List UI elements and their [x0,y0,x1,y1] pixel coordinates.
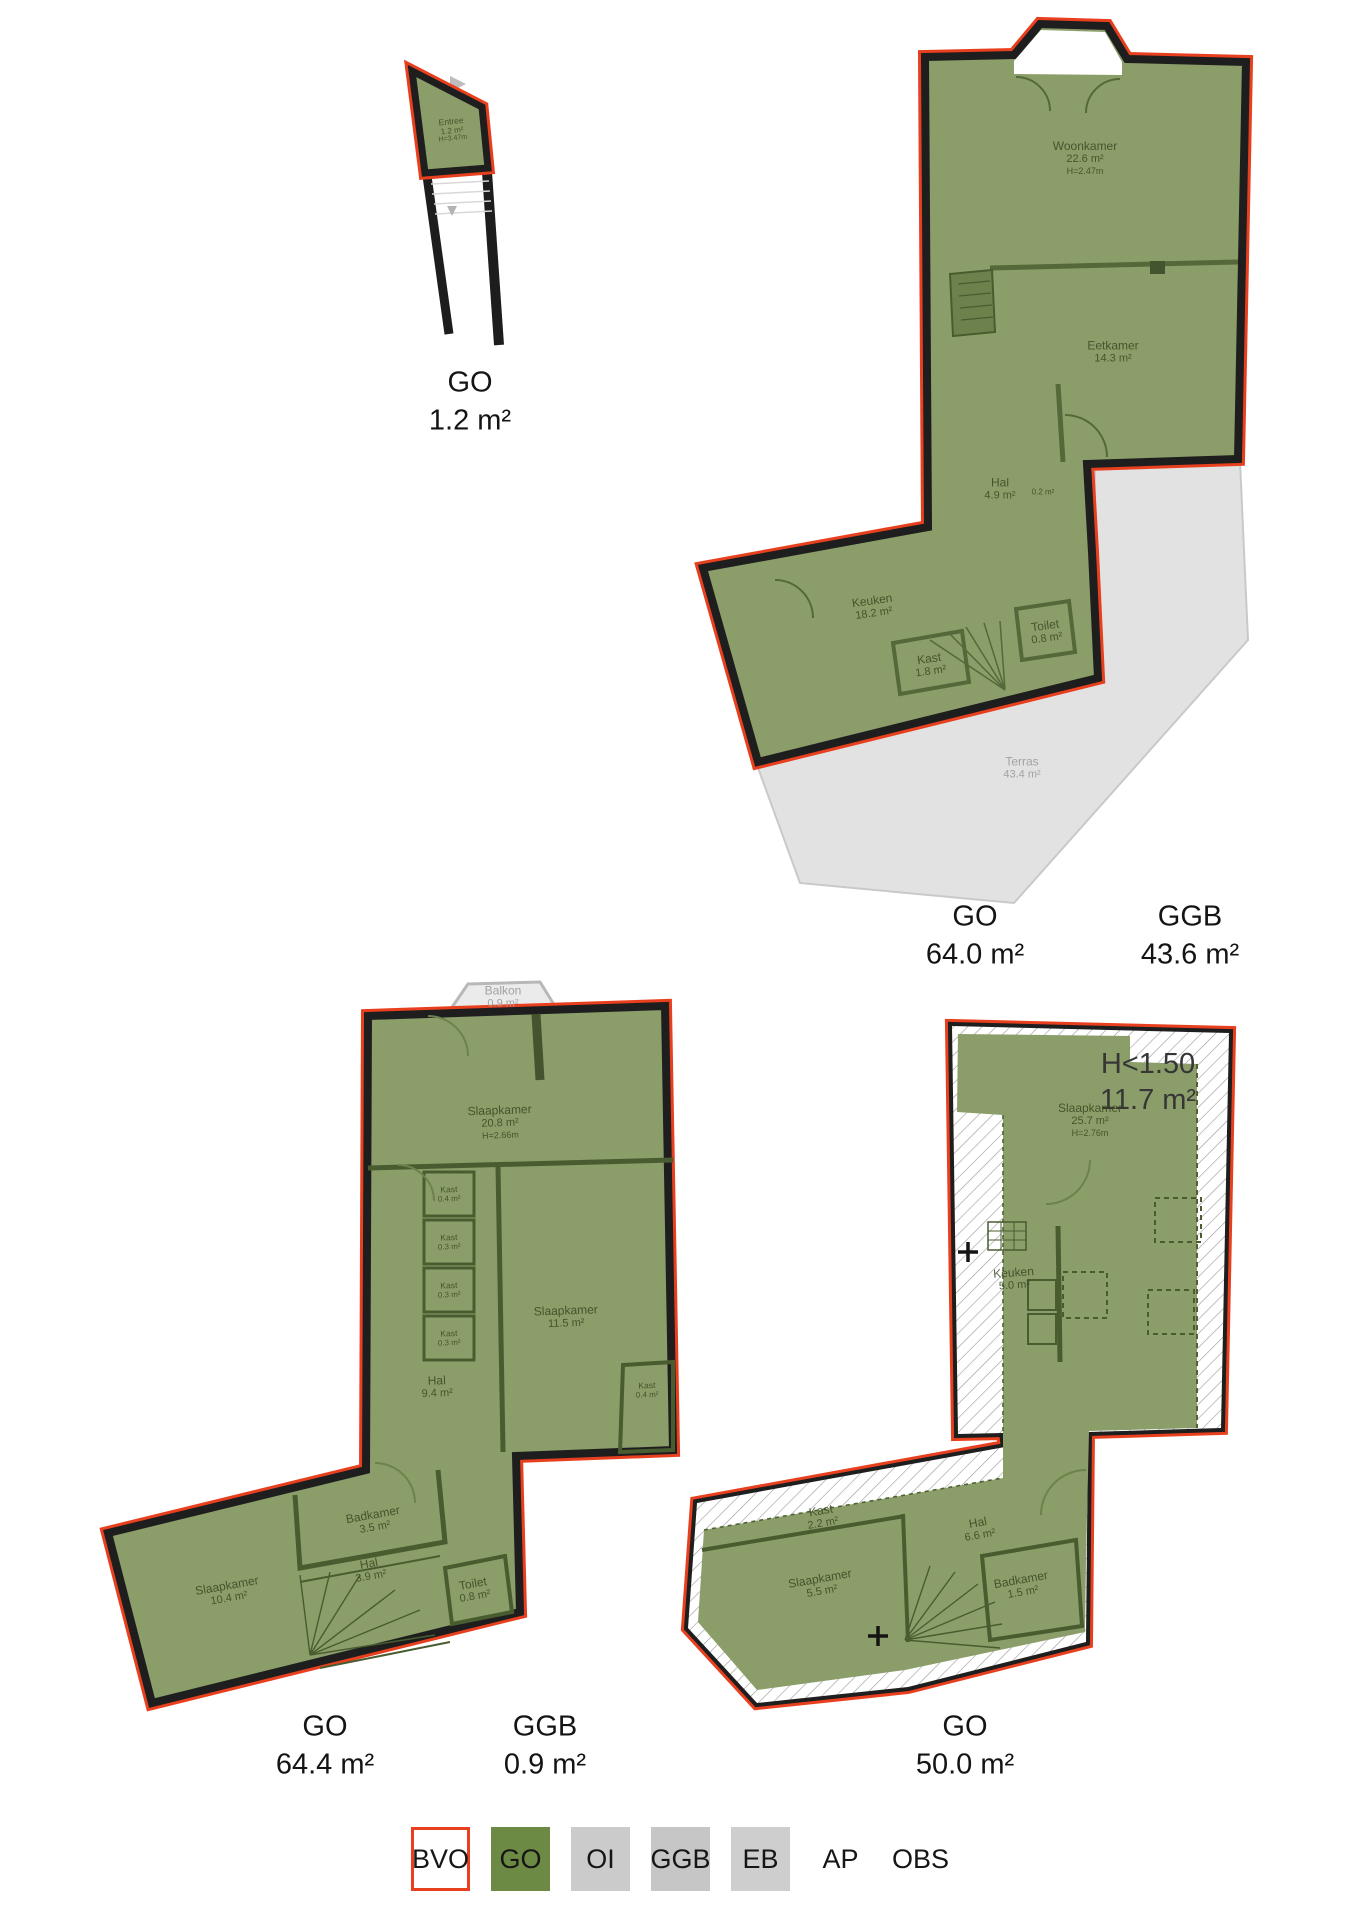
legend-item-obs: OBS [891,1827,950,1891]
floorplan-floor1 [703,24,1248,903]
legend: BVO GO OI GGB EB AP OBS [411,1827,950,1891]
room-name: Balkon [485,983,522,997]
legend-label: EB [742,1844,778,1875]
total-type: GO [926,898,1024,936]
legend-label: AP [822,1844,858,1875]
total-value: 50.0 m² [916,1746,1014,1784]
room-area: 0.4 m² [438,1194,461,1204]
total-value: 43.6 m² [1141,936,1239,974]
legend-item-eb: EB [731,1827,790,1891]
room-area: 43.4 m² [1003,769,1040,782]
room-area: 11.5 m² [534,1316,598,1331]
total-type: GO [276,1708,374,1746]
room-label-kast-floor3: Kast 2.2 m² [804,1501,839,1533]
floor2-go-area [108,1006,673,1703]
total-value: 64.4 m² [276,1746,374,1784]
room-label-toilet-floor1: Toilet 0.8 m² [1029,616,1064,647]
room-label-balkon: Balkon 0.9 m² [485,983,522,1010]
room-area: 0.3 m² [438,1290,461,1300]
room-area: 9.4 m² [421,1387,453,1401]
room-label-keuken-floor1: Keuken 18.2 m² [851,591,895,624]
legend-label: GO [499,1844,541,1875]
total-value: 0.9 m² [504,1746,586,1784]
room-area: 0.9 m² [485,998,522,1011]
room-label-hal1-floor2: Hal 9.4 m² [421,1373,453,1401]
stairs-down-arrow-icon [447,206,457,216]
floorplan-floor3 [688,1026,1229,1703]
legend-item-ap: AP [811,1827,870,1891]
room-label-eetkamer: Eetkamer 14.3 m² [1087,338,1138,365]
room-label-slaapkamer-floor3: Slaapkamer 25.7 m² H=2.76m [1058,1101,1122,1139]
room-height: H=2.66m [468,1129,532,1142]
room-area: 22.6 m² [1053,153,1117,166]
total-label-entree-go: GO 1.2 m² [429,364,511,439]
room-label-toilet-floor2: Toilet 0.8 m² [456,1574,491,1606]
room-name: Slaapkamer [467,1102,531,1118]
total-label-floor2-ggb: GGB 0.9 m² [504,1708,586,1783]
legend-label: BVO [412,1844,469,1875]
room-label-kast5-floor2: Kast 0.4 m² [635,1380,658,1400]
room-area: 25.7 m² [1058,1115,1122,1128]
total-type: GGB [504,1708,586,1746]
room-label-hal-floor1: Hal 4.9 m² [984,475,1015,502]
total-type: GGB [1141,898,1239,936]
room-label-hal2-floor2: Hal 3.9 m² [352,1554,387,1586]
room-label-hal-floor3: Hal 6.6 m² [961,1513,996,1545]
legend-label: OBS [892,1844,949,1875]
total-label-floor2-go: GO 64.4 m² [276,1708,374,1783]
room-name: Slaapkamer [1058,1101,1122,1115]
total-label-floor1-ggb: GGB 43.6 m² [1141,898,1239,973]
total-value: 1.2 m² [429,402,511,440]
total-type: GO [429,364,511,402]
room-label-kast-floor1: Kast 1.8 m² [913,649,948,680]
room-name: Hal [984,475,1015,489]
floor1-flue [1150,261,1165,274]
room-label-kast1-floor2: Kast 0.4 m² [437,1184,460,1204]
room-label-entree: Entree 1.2 m² H=3.47m [436,115,467,146]
room-name: Slaapkamer [534,1302,598,1318]
room-height: H=2.47m [1053,166,1117,177]
room-name: Terras [1003,754,1040,768]
legend-item-bvo: BVO [411,1827,470,1891]
floor1-stairwell [950,270,995,336]
room-label-slaapkamer1-floor2: Slaapkamer 20.8 m² H=2.66m [467,1102,532,1142]
floorplan-floor2 [108,982,673,1703]
room-area: 4.9 m² [984,490,1015,503]
room-label-keuken-floor3: Keuken 5.0 m² [993,1264,1035,1294]
floorplan-entree [412,71,499,345]
room-area: 0.4 m² [636,1390,659,1400]
room-label-woonkamer: Woonkamer 22.6 m² H=2.47m [1053,139,1117,177]
room-area: 0.2 m² [1032,487,1055,496]
room-label-kast3-floor2: Kast 0.3 m² [437,1280,460,1300]
room-name: Hal [421,1373,453,1388]
room-label-kast-small-floor1: 0.2 m² [1032,487,1055,496]
legend-item-go: GO [491,1827,550,1891]
room-label-terras: Terras 43.4 m² [1003,754,1040,781]
room-name: Eetkamer [1087,338,1138,352]
stairs-treads [431,181,492,214]
room-label-slaapkamer2-floor2: Slaapkamer 11.5 m² [534,1302,599,1331]
total-value: 64.0 m² [926,936,1024,974]
legend-item-oi: OI [571,1827,630,1891]
room-area: 0.3 m² [438,1338,461,1348]
legend-item-ggb: GGB [651,1827,710,1891]
room-height: H=2.76m [1058,1128,1122,1139]
legend-label: GGB [651,1844,711,1875]
floorplan-report-page: Entree 1.2 m² H=3.47m Woonkamer 22.6 m² … [0,0,1358,1920]
room-area: 0.3 m² [438,1242,461,1252]
total-label-floor3-go: GO 50.0 m² [916,1708,1014,1783]
h150-line1: H<1.50 [1100,1046,1196,1082]
room-area: 14.3 m² [1087,353,1138,366]
total-label-floor1-go: GO 64.0 m² [926,898,1024,973]
room-name: Woonkamer [1053,139,1117,153]
legend-label: OI [586,1844,615,1875]
room-label-kast2-floor2: Kast 0.3 m² [437,1232,460,1252]
total-type: GO [916,1708,1014,1746]
room-label-kast4-floor2: Kast 0.3 m² [437,1328,460,1348]
